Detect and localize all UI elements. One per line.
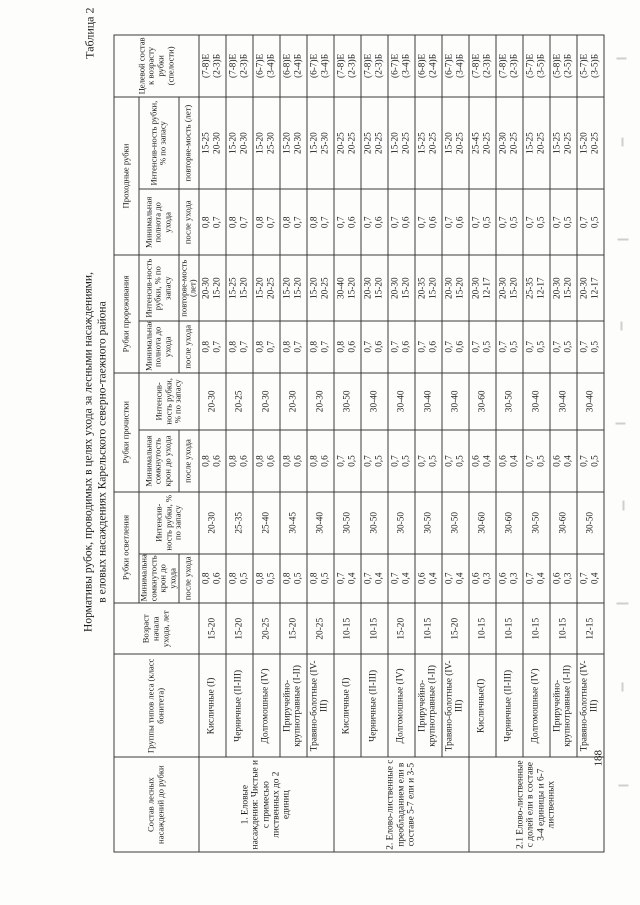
scan-artifact (617, 58, 627, 60)
table-row: Приручейно-крупнотравные (I-II) 15-20 0,… (280, 35, 307, 852)
prohod-density-value: 0,8 0,7 (307, 189, 334, 255)
age-value: 15-20 (226, 603, 253, 654)
osv-density-value: 0,6 0,3 (550, 554, 577, 603)
prohod-density-value: 0,7 0,5 (469, 189, 496, 255)
proch-intensity-value: 20-30 (253, 373, 280, 431)
osv-density-value: 0,7 0,4 (361, 554, 388, 603)
age-value: 10-15 (361, 603, 388, 654)
osv-intensity-value: 30-45 (280, 492, 307, 554)
forest-type: Приручейно-крупнотравные (I-II) (550, 654, 577, 757)
prorezh-density-value: 0,7 0,6 (361, 321, 388, 372)
header-prorezh-density: Минимальная полнота до ухода (139, 321, 179, 372)
prorezh-intensity-value: 20-30 15-20 (550, 255, 577, 321)
target-composition-value: (6-8)Е (2-4)Б (415, 35, 442, 97)
prohod-density-value: 0,7 0,5 (523, 189, 550, 255)
forest-type: Приручейно-крупнотравные (I-II) (280, 654, 307, 757)
rotated-table-page: Таблица 2 Нормативы рубок, проводимых в … (1, 0, 640, 905)
prorezh-density-value: 0,7 0,5 (550, 321, 577, 372)
table-row: Долгомошные (IV) 10-15 0,7 0,4 30-50 0,7… (523, 35, 550, 852)
prorezh-intensity-value: 20-30 12-17 (469, 255, 496, 321)
table-row: Черничные (II-III) 10-15 0,6 0,3 30-60 0… (496, 35, 523, 852)
prohod-density-value: 0,7 0,5 (496, 189, 523, 255)
prohod-intensity-value: 15-20 20-25 (577, 97, 604, 190)
osv-density-value: 0,8 0,5 (226, 554, 253, 603)
scanned-page: Таблица 2 Нормативы рубок, проводимых в … (0, 0, 640, 905)
prohod-intensity-value: 15-20 20-30 (280, 97, 307, 190)
table-title-line2: в еловых насаждениях Карельского северно… (96, 0, 110, 905)
osv-density-value: 0,8 0,5 (280, 554, 307, 603)
prorezh-intensity-value: 15-25 15-20 (226, 255, 253, 321)
prorezh-density-value: 0,8 0,7 (226, 321, 253, 372)
prohod-intensity-value: 20-25 20-25 (334, 97, 361, 190)
target-composition-value: (6-7)Е (3-4)Б (307, 35, 334, 97)
header-target: Целевой состав к возрасту рубки (спелост… (114, 35, 199, 97)
prorezh-density-value: 0,8 0,7 (253, 321, 280, 372)
osv-density-value: 0,7 0,4 (334, 554, 361, 603)
scan-artifact (622, 683, 624, 692)
osv-density-value: 0,7 0,4 (388, 554, 415, 603)
age-value: 12-15 (577, 603, 604, 654)
prorezh-density-value: 0,7 0,6 (415, 321, 442, 372)
age-value: 10-15 (550, 603, 577, 654)
forest-type: Кисличные (I) (199, 654, 226, 757)
table-row: Долгомошные (IV) 20-25 0,8 0,5 25-40 0,8… (253, 35, 280, 852)
proch-density-value: 0,8 0,6 (280, 430, 307, 492)
osv-density-value: 0,6 0,4 (415, 554, 442, 603)
header-osv-after: после ухода (179, 554, 199, 603)
forest-type: Травяно-болотные (IV-III) (442, 654, 469, 757)
forest-type: Кисличные(I) (469, 654, 496, 757)
proch-density-value: 0,7 0,5 (442, 430, 469, 492)
table-title: Нормативы рубок, проводимых в целях уход… (83, 0, 110, 905)
header-group-prorezhivanie: Рубки прореживания (114, 255, 139, 372)
header-prorezh-intensity: Интенсив-ность рубки, % по запасу (139, 255, 179, 321)
proch-intensity-value: 20-30 (307, 373, 334, 431)
prohod-density-value: 0,7 0,6 (388, 189, 415, 255)
scan-artifact (622, 138, 624, 147)
proch-density-value: 0,7 0,5 (361, 430, 388, 492)
osv-density-value: 0,8 0,5 (307, 554, 334, 603)
age-value: 15-20 (280, 603, 307, 654)
osv-intensity-value: 25-40 (253, 492, 280, 554)
proch-intensity-value: 20-30 (199, 373, 226, 431)
age-value: 10-15 (469, 603, 496, 654)
prorezh-density-value: 0,7 0,5 (577, 321, 604, 372)
prorezh-intensity-value: 30-40 15-20 (334, 255, 361, 321)
osv-intensity-value: 30-50 (334, 492, 361, 554)
prorezh-intensity-value: 20-35 15-20 (415, 255, 442, 321)
proch-density-value: 0,6 0,4 (550, 430, 577, 492)
prohod-density-value: 0,8 0,7 (280, 189, 307, 255)
prohod-intensity-value: 15-25 20-30 (199, 97, 226, 190)
forest-type: Долгомошные (IV) (523, 654, 550, 757)
proch-density-value: 0,6 0,4 (496, 430, 523, 492)
prorezh-density-value: 0,7 0,6 (388, 321, 415, 372)
prorezh-intensity-value: 20-30 15-20 (361, 255, 388, 321)
forest-type: Черничные (II-III) (496, 654, 523, 757)
section-label: 1. Еловые насаждения: Чистые и с примесь… (199, 757, 334, 852)
forest-type: Черничные (II-III) (226, 654, 253, 757)
scan-artifact (619, 785, 629, 787)
prorezh-density-value: 0,7 0,5 (523, 321, 550, 372)
table-caption: Таблица 2 (83, 8, 98, 59)
header-row-groups: Состав лесных насаждений до рубки Группы… (114, 35, 139, 852)
proch-density-value: 0,8 0,6 (307, 430, 334, 492)
osv-intensity-value: 30-40 (307, 492, 334, 554)
prohod-intensity-value: 15-25 20-25 (523, 97, 550, 190)
prohod-density-value: 0,7 0,6 (334, 189, 361, 255)
prorezh-density-value: 0,7 0,6 (442, 321, 469, 372)
prorezh-density-value: 0,7 0,5 (469, 321, 496, 372)
prohod-intensity-value: 15-25 20-25 (550, 97, 577, 190)
age-value: 20-25 (253, 603, 280, 654)
target-composition-value: (6-8)Е (2-4)Б (280, 35, 307, 97)
forest-type: Долгомошные (IV) (253, 654, 280, 757)
prorezh-intensity-value: 20-30 12-17 (577, 255, 604, 321)
table-row: 2. Елово-лиственные с преобладанием ели … (334, 35, 361, 852)
header-age: Возраст начала ухода, лет (114, 603, 199, 654)
header-proch-intensity: Интенсив-ность рубки, % по запасу (139, 373, 199, 431)
header-proch-after: после ухода (179, 430, 199, 492)
target-composition-value: (5-7)Е (3-5)Б (523, 35, 550, 97)
proch-intensity-value: 30-40 (577, 373, 604, 431)
prohod-intensity-value: 15-20 25-30 (307, 97, 334, 190)
target-composition-value: (7-8)Е (2-3)Б (496, 35, 523, 97)
table-row: Долгомошные (IV) 15-20 0,7 0,4 30-50 0,7… (388, 35, 415, 852)
proch-intensity-value: 30-40 (415, 373, 442, 431)
norms-table: Состав лесных насаждений до рубки Группы… (114, 35, 605, 853)
title-band: Таблица 2 Нормативы рубок, проводимых в … (83, 0, 111, 905)
prorezh-intensity-value: 20-30 15-20 (496, 255, 523, 321)
osv-intensity-value: 30-50 (361, 492, 388, 554)
scan-artifact (623, 501, 625, 511)
page-number: 188 (593, 750, 605, 767)
scan-artifact (617, 603, 629, 605)
prohod-density-value: 0,7 0,6 (415, 189, 442, 255)
prohod-intensity-value: 15-20 25-30 (253, 97, 280, 190)
table-row: Травяно-болотные (IV-III) 12-15 0,7 0,4 … (577, 35, 604, 852)
header-group-prochistka: Рубки прочистки (114, 373, 139, 492)
target-composition-value: (7-8)Е (2-3)Б (469, 35, 496, 97)
header-prohod-after: после ухода (179, 189, 199, 255)
section-label: 2. Елово-лиственные с преобладанием ели … (334, 757, 469, 852)
prorezh-density-value: 0,8 0,7 (199, 321, 226, 372)
age-value: 15-20 (388, 603, 415, 654)
header-forest-types: Группы типов леса (класс бонитета) (114, 654, 199, 757)
proch-intensity-value: 30-40 (361, 373, 388, 431)
table-row: Травяно-болотные (IV-III) 15-20 0,7 0,4 … (442, 35, 469, 852)
osv-intensity-value: 25-35 (226, 492, 253, 554)
osv-density-value: 0,7 0,4 (523, 554, 550, 603)
prohod-density-value: 0,7 0,5 (550, 189, 577, 255)
section-label: 2.1 Елово-лиственные с долей ели в соста… (469, 757, 604, 852)
prohod-intensity-value: 20-30 20-25 (496, 97, 523, 190)
osv-density-value: 0,8 0,6 (199, 554, 226, 603)
age-value: 15-20 (442, 603, 469, 654)
forest-type: Травяно-болотные (IV-III) (307, 654, 334, 757)
proch-density-value: 0,8 0,6 (199, 430, 226, 492)
header-proch-density: Минимальная сомкнутость крон до ухода (139, 430, 179, 492)
prorezh-intensity-value: 20-30 15-20 (388, 255, 415, 321)
prohod-density-value: 0,8 0,7 (226, 189, 253, 255)
osv-intensity-value: 20-30 (199, 492, 226, 554)
header-group-osvetlenie: Рубки осветления (114, 492, 139, 603)
header-prohod-density: Минимальная полнота до ухода (139, 189, 179, 255)
proch-intensity-value: 30-40 (523, 373, 550, 431)
osv-density-value: 0,6 0,3 (496, 554, 523, 603)
header-osv-intensity: Интенсив-ность рубки, % по запасу (139, 492, 199, 554)
proch-density-value: 0,8 0,6 (253, 430, 280, 492)
proch-density-value: 0,7 0,5 (334, 430, 361, 492)
scan-artifact (616, 423, 626, 425)
target-composition-value: (7-8)Е (2-3)Б (361, 35, 388, 97)
table-row: 1. Еловые насаждения: Чистые и с примесь… (199, 35, 226, 852)
table-title-line1: Нормативы рубок, проводимых в целях уход… (83, 0, 97, 905)
proch-intensity-value: 30-50 (496, 373, 523, 431)
prorezh-density-value: 0,8 0,7 (280, 321, 307, 372)
prorezh-intensity-value: 15-20 15-20 (280, 255, 307, 321)
osv-density-value: 0,7 0,4 (577, 554, 604, 603)
proch-intensity-value: 30-40 (388, 373, 415, 431)
header-group-prohodnye: Проходные рубки (114, 97, 139, 255)
prohod-density-value: 0,8 0,7 (253, 189, 280, 255)
prohod-intensity-value: 15-20 20-25 (442, 97, 469, 190)
age-value: 20-25 (307, 603, 334, 654)
proch-intensity-value: 20-25 (226, 373, 253, 431)
osv-intensity-value: 30-60 (469, 492, 496, 554)
table-row: Приручейно-крупнотравные (I-II) 10-15 0,… (550, 35, 577, 852)
target-composition-value: (7-8)Е (2-3)Б (199, 35, 226, 97)
prohod-density-value: 0,8 0,7 (199, 189, 226, 255)
proch-density-value: 0,8 0,6 (226, 430, 253, 492)
prorezh-density-value: 0,8 0,6 (334, 321, 361, 372)
osv-density-value: 0,8 0,5 (253, 554, 280, 603)
age-value: 10-15 (334, 603, 361, 654)
forest-type: Кисличные (I) (334, 654, 361, 757)
target-composition-value: (6-7)Е (3-4)Б (253, 35, 280, 97)
osv-intensity-value: 30-50 (577, 492, 604, 554)
scan-artifact (618, 239, 629, 241)
prohod-intensity-value: 15-20 20-25 (388, 97, 415, 190)
proch-intensity-value: 30-50 (334, 373, 361, 431)
target-composition-value: (5-7)Е (3-5)Б (577, 35, 604, 97)
header-prohod-repeat: повторяе-мость (лет) (179, 97, 199, 190)
target-composition-value: (6-7)Е (3-4)Б (442, 35, 469, 97)
age-value: 10-15 (523, 603, 550, 654)
header-osv-density: Минимальная сомкнутость крон до ухода (139, 554, 179, 603)
proch-density-value: 0,7 0,5 (577, 430, 604, 492)
age-value: 15-20 (199, 603, 226, 654)
header-prorezh-after: после ухода (179, 321, 199, 372)
age-value: 10-15 (415, 603, 442, 654)
proch-density-value: 0,7 0,5 (415, 430, 442, 492)
prorezh-intensity-value: 20-30 15-20 (442, 255, 469, 321)
prohod-density-value: 0,7 0,6 (361, 189, 388, 255)
proch-intensity-value: 20-30 (280, 373, 307, 431)
header-composition: Состав лесных насаждений до рубки (114, 757, 199, 852)
scan-artifact (621, 322, 623, 331)
header-prohod-intensity: Интенсив-ность рубки, % по запасу (139, 97, 179, 190)
target-composition-value: (7-8)Е (2-3)Б (226, 35, 253, 97)
age-value: 10-15 (496, 603, 523, 654)
forest-type: Травяно-болотные (IV-III) (577, 654, 604, 757)
proch-density-value: 0,7 0,5 (523, 430, 550, 492)
osv-intensity-value: 30-50 (523, 492, 550, 554)
header-prorezh-repeat: повторяе-мость (лет) (179, 255, 199, 321)
osv-intensity-value: 30-50 (388, 492, 415, 554)
proch-intensity-value: 30-60 (469, 373, 496, 431)
osv-density-value: 0,6 0,3 (469, 554, 496, 603)
proch-intensity-value: 30-40 (442, 373, 469, 431)
osv-intensity-value: 30-60 (496, 492, 523, 554)
forest-type: Черничные (II-III) (361, 654, 388, 757)
target-composition-value: (5-8)Е (2-5)Б (550, 35, 577, 97)
prohod-intensity-value: 25-45 20-25 (469, 97, 496, 190)
table-row: Черничные (II-III) 15-20 0,8 0,5 25-35 0… (226, 35, 253, 852)
prohod-intensity-value: 15-25 20-25 (415, 97, 442, 190)
osv-intensity-value: 30-50 (442, 492, 469, 554)
table-row: Черничные (II-III) 10-15 0,7 0,4 30-50 0… (361, 35, 388, 852)
prorezh-intensity-value: 15-20 20-25 (307, 255, 334, 321)
proch-intensity-value: 30-40 (550, 373, 577, 431)
target-composition-value: (6-7)Е (3-4)Б (388, 35, 415, 97)
proch-density-value: 0,6 0,4 (469, 430, 496, 492)
forest-type: Приручейно-крупнотравные (I-II) (415, 654, 442, 757)
prohod-intensity-value: 20-25 20-25 (361, 97, 388, 190)
prohod-density-value: 0,7 0,6 (442, 189, 469, 255)
osv-intensity-value: 30-60 (550, 492, 577, 554)
prohod-density-value: 0,7 0,5 (577, 189, 604, 255)
prorezh-density-value: 0,8 0,7 (307, 321, 334, 372)
osv-density-value: 0,7 0,4 (442, 554, 469, 603)
prorezh-intensity-value: 15-20 20-25 (253, 255, 280, 321)
table-row: Приручейно-крупнотравные (I-II) 10-15 0,… (415, 35, 442, 852)
proch-density-value: 0,7 0,5 (388, 430, 415, 492)
prorezh-intensity-value: 25-35 12-17 (523, 255, 550, 321)
forest-type: Долгомошные (IV) (388, 654, 415, 757)
target-composition-value: (7-8)Е (2-3)Б (334, 35, 361, 97)
table-row: 2.1 Елово-лиственные с долей ели в соста… (469, 35, 496, 852)
prorezh-intensity-value: 20-30 15-20 (199, 255, 226, 321)
prohod-intensity-value: 15-20 20-30 (226, 97, 253, 190)
prorezh-density-value: 0,7 0,5 (496, 321, 523, 372)
table-row: Травяно-болотные (IV-III) 20-25 0,8 0,5 … (307, 35, 334, 852)
osv-intensity-value: 30-50 (415, 492, 442, 554)
